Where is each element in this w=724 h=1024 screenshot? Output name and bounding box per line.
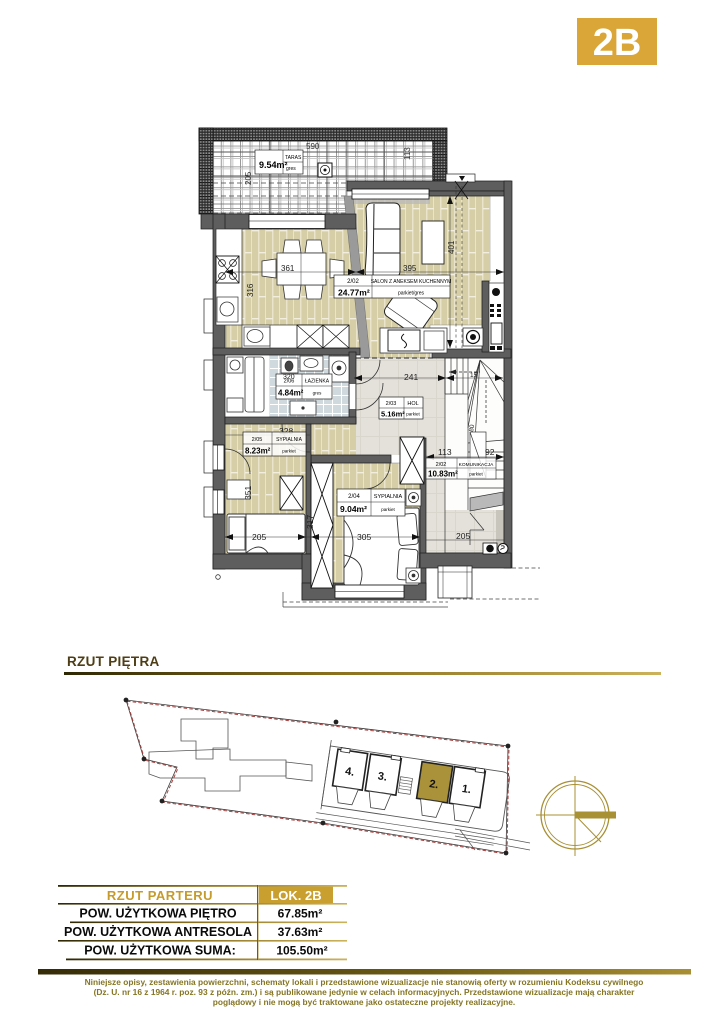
svg-text:2/05: 2/05 <box>252 437 263 443</box>
svg-text:241: 241 <box>404 372 418 382</box>
svg-text:parkiet: parkiet <box>406 412 420 417</box>
svg-text:Niniejsze opisy, zestawienia p: Niniejsze opisy, zestawienia powierzchni… <box>85 977 644 987</box>
svg-text:SYPIALNIA: SYPIALNIA <box>374 494 403 500</box>
svg-text:RZUT PIĘTRA: RZUT PIĘTRA <box>67 654 160 669</box>
svg-text:4.: 4. <box>344 766 355 779</box>
svg-text:gres: gres <box>286 166 296 172</box>
svg-text:205: 205 <box>252 532 266 542</box>
svg-text:4.84m²: 4.84m² <box>278 389 304 398</box>
svg-text:3.: 3. <box>377 770 388 783</box>
svg-text:SYPIALNIA: SYPIALNIA <box>276 437 303 443</box>
svg-text:KOMUNIKACJA: KOMUNIKACJA <box>459 462 494 468</box>
svg-text:1.: 1. <box>461 783 472 796</box>
svg-text:205: 205 <box>244 171 253 185</box>
svg-text:24.77m²: 24.77m² <box>338 288 370 298</box>
svg-text:8.23m²: 8.23m² <box>245 447 271 456</box>
svg-text:113: 113 <box>438 447 452 457</box>
svg-text:poglądowy i nie mogą być trakt: poglądowy i nie mogą być traktowane jako… <box>213 997 516 1007</box>
svg-text:POW. UŻYTKOWA SUMA:: POW. UŻYTKOWA SUMA: <box>84 943 236 958</box>
svg-text:2B: 2B <box>593 22 642 64</box>
svg-text:TARAS: TARAS <box>285 155 302 161</box>
svg-text:2/04: 2/04 <box>348 494 360 500</box>
svg-text:320: 320 <box>283 374 295 381</box>
svg-text:POW. UŻYTKOWA PIĘTRO: POW. UŻYTKOWA PIĘTRO <box>79 906 236 921</box>
svg-text:316: 316 <box>246 283 255 297</box>
svg-text:361: 361 <box>281 264 295 273</box>
svg-text:351: 351 <box>243 486 253 500</box>
svg-text:305: 305 <box>357 532 371 542</box>
svg-text:113: 113 <box>403 147 412 160</box>
svg-text:590: 590 <box>306 142 320 151</box>
svg-text:parkiet: parkiet <box>469 472 483 477</box>
svg-text:205: 205 <box>456 531 470 541</box>
svg-text:37.63m²: 37.63m² <box>278 925 323 939</box>
svg-text:SALON Z ANEKSEM KUCHENNYM: SALON Z ANEKSEM KUCHENNYM <box>371 279 452 285</box>
svg-text:parkiet/gres: parkiet/gres <box>398 291 425 297</box>
svg-text:395: 395 <box>403 264 417 273</box>
svg-text:parkiet: parkiet <box>282 449 296 454</box>
svg-text:10.83m²: 10.83m² <box>428 470 458 479</box>
svg-text:67.85m²: 67.85m² <box>278 907 323 921</box>
svg-text:parkiet: parkiet <box>381 507 395 512</box>
svg-text:317: 317 <box>305 515 315 529</box>
svg-text:2.: 2. <box>428 778 439 791</box>
svg-text:ŁAZIENKA: ŁAZIENKA <box>305 379 330 385</box>
svg-text:POW. UŻYTKOWA ANTRESOLA: POW. UŻYTKOWA ANTRESOLA <box>64 924 252 939</box>
svg-text:gres: gres <box>313 391 323 396</box>
svg-text:(Dz. U. nr 16 z 1964 r. poz. 9: (Dz. U. nr 16 z 1964 r. poz. 93 z późn. … <box>94 987 636 997</box>
svg-text:LOK. 2B: LOK. 2B <box>270 888 321 903</box>
svg-text:2/02: 2/02 <box>347 279 359 285</box>
svg-text:2/03: 2/03 <box>386 401 397 407</box>
svg-text:401: 401 <box>447 240 456 254</box>
svg-text:HOL: HOL <box>407 401 418 407</box>
svg-text:9.04m²: 9.04m² <box>340 504 367 514</box>
svg-text:5.16m²: 5.16m² <box>381 410 405 419</box>
svg-text:92: 92 <box>485 447 495 457</box>
svg-text:RZUT PARTERU: RZUT PARTERU <box>107 888 213 903</box>
svg-text:105.50m²: 105.50m² <box>276 944 327 958</box>
svg-text:2/02: 2/02 <box>436 462 447 468</box>
svg-text:9.54m²: 9.54m² <box>259 160 288 170</box>
